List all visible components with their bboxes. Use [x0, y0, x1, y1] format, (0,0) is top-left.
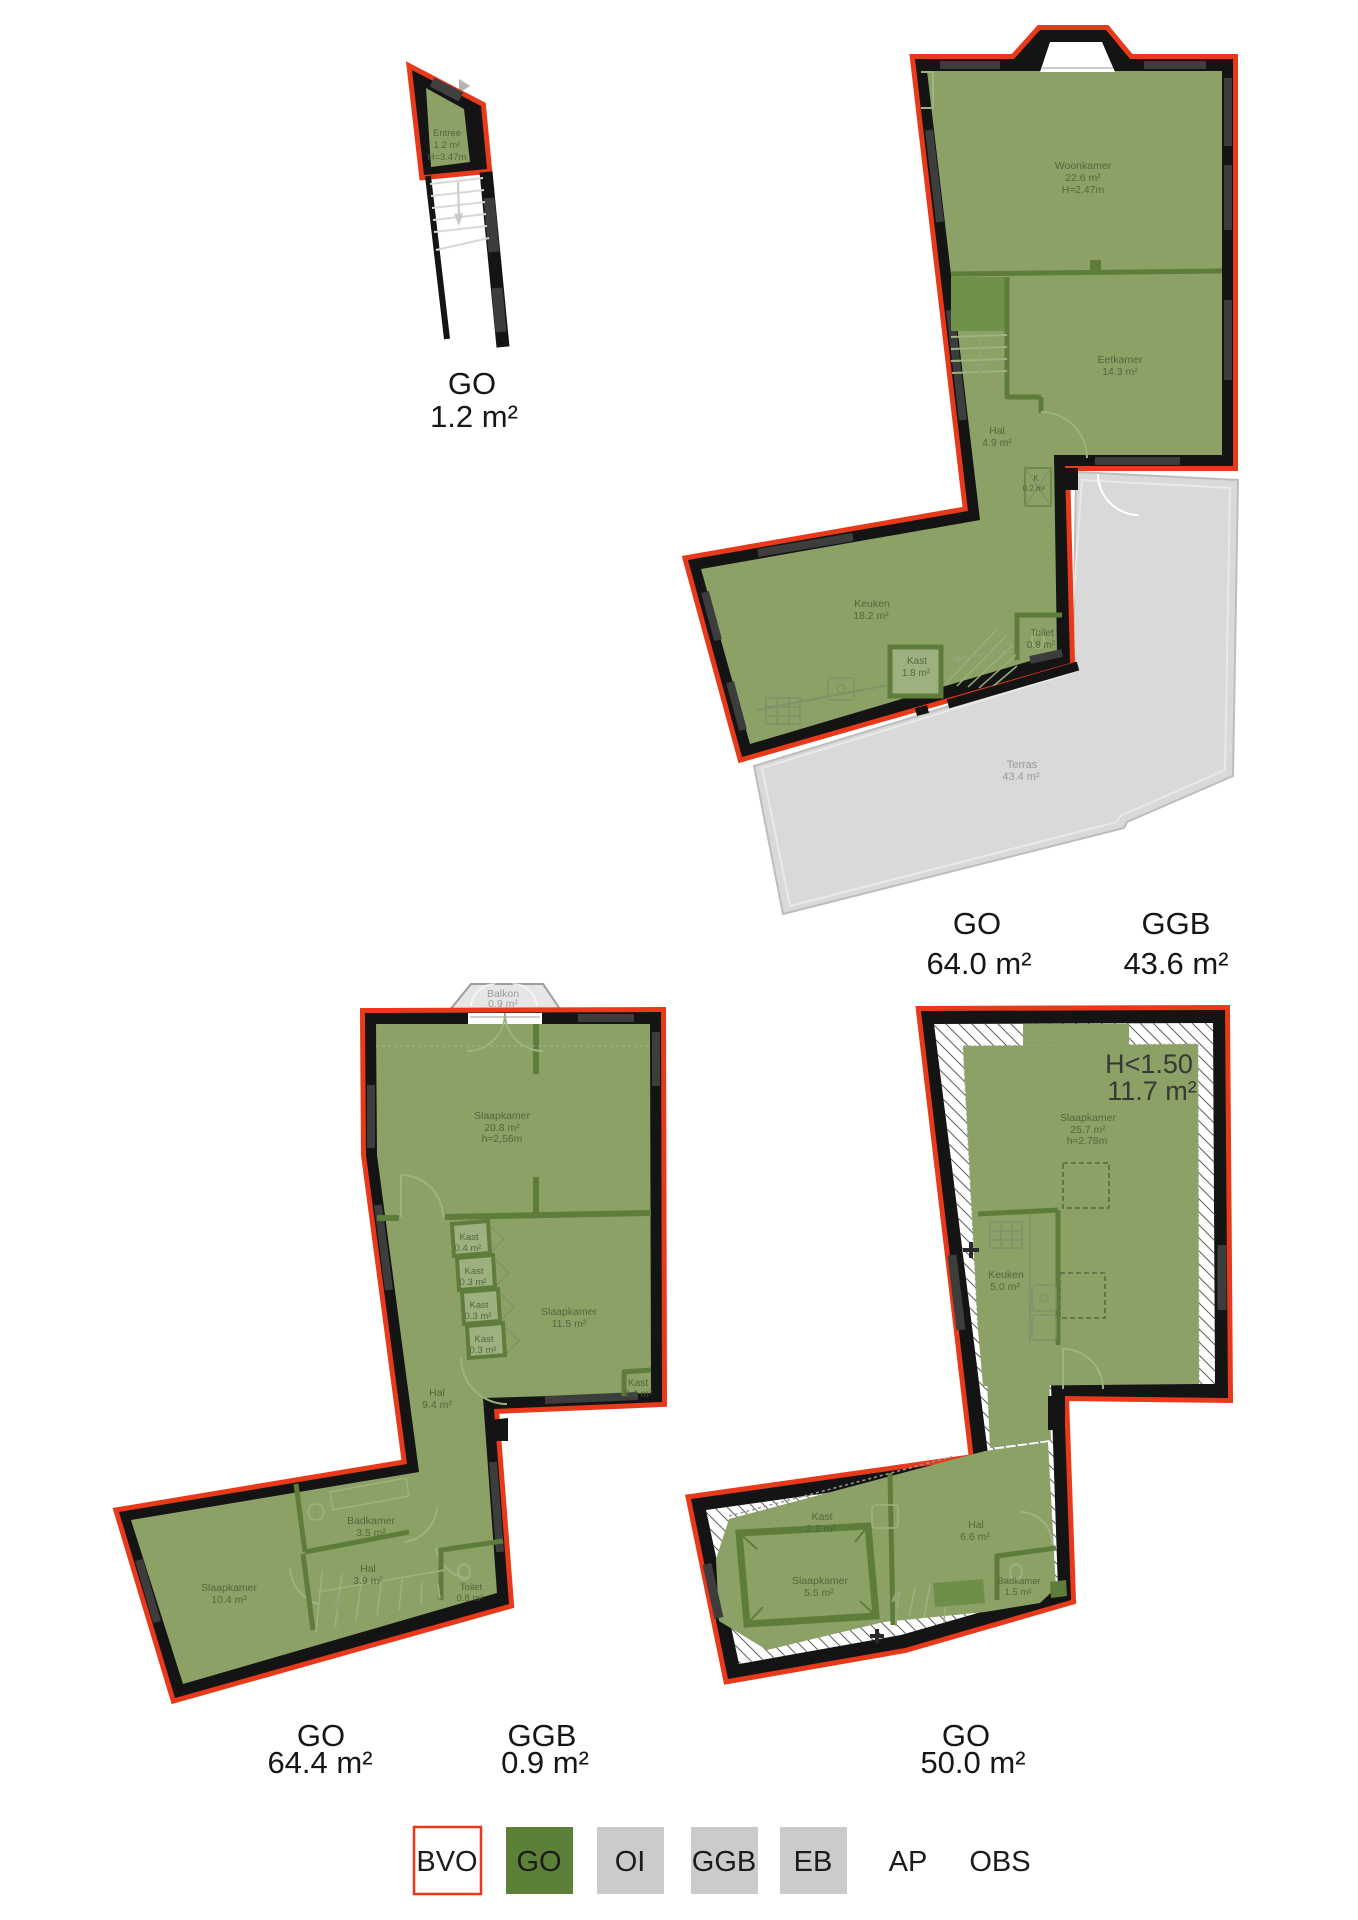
- svg-text:0.8 m²: 0.8 m²: [1027, 640, 1056, 651]
- svg-text:h≈2,56m: h≈2,56m: [482, 1133, 523, 1145]
- svg-text:0.3 m²: 0.3 m²: [460, 1277, 487, 1288]
- svg-text:Entree: Entree: [433, 128, 461, 139]
- svg-text:3.9 m²: 3.9 m²: [353, 1575, 383, 1587]
- svg-text:6.6 m²: 6.6 m²: [960, 1531, 990, 1543]
- svg-text:Kast: Kast: [474, 1334, 493, 1345]
- svg-text:h≈2.78m: h≈2.78m: [1067, 1135, 1108, 1147]
- svg-text:Slaapkamer: Slaapkamer: [201, 1582, 258, 1594]
- svg-text:K: K: [1033, 474, 1039, 483]
- svg-text:H=3.47m: H=3.47m: [428, 152, 467, 163]
- svg-text:1.8 m²: 1.8 m²: [902, 668, 931, 679]
- svg-text:Toilet: Toilet: [1030, 628, 1054, 639]
- svg-text:Slaapkamer: Slaapkamer: [1060, 1112, 1117, 1124]
- svg-text:Kast: Kast: [464, 1266, 483, 1277]
- svg-text:64.4 m²: 64.4 m²: [267, 1745, 372, 1780]
- svg-text:43.4 m²: 43.4 m²: [1002, 771, 1040, 783]
- svg-text:0.4 m²: 0.4 m²: [624, 1389, 653, 1400]
- svg-text:Hal: Hal: [989, 425, 1005, 437]
- svg-text:GGB: GGB: [692, 1846, 756, 1878]
- svg-text:5.5 m²: 5.5 m²: [804, 1587, 834, 1599]
- svg-text:2.2 m²: 2.2 m²: [806, 1523, 836, 1535]
- svg-text:Hal: Hal: [360, 1563, 376, 1575]
- svg-text:Hal: Hal: [429, 1387, 445, 1399]
- svg-text:Badkamer: Badkamer: [997, 1576, 1040, 1587]
- svg-text:11.5 m²: 11.5 m²: [552, 1318, 587, 1330]
- svg-text:0.9 m²: 0.9 m²: [501, 1745, 589, 1780]
- svg-text:EB: EB: [794, 1846, 833, 1878]
- svg-text:Keuken: Keuken: [988, 1269, 1024, 1281]
- svg-text:0.3 m²: 0.3 m²: [470, 1345, 497, 1356]
- svg-text:18.2 m²: 18.2 m²: [853, 610, 889, 622]
- svg-text:9.4 m²: 9.4 m²: [422, 1399, 452, 1411]
- svg-text:GO: GO: [516, 1846, 561, 1878]
- svg-text:3.5 m²: 3.5 m²: [356, 1527, 386, 1539]
- svg-text:50.0 m²: 50.0 m²: [920, 1745, 1025, 1780]
- svg-text:1.2 m²: 1.2 m²: [434, 140, 461, 151]
- svg-text:1.2 m²: 1.2 m²: [430, 399, 518, 434]
- svg-text:OI: OI: [615, 1846, 646, 1878]
- svg-text:Kast: Kast: [811, 1511, 832, 1523]
- svg-text:22.6 m²: 22.6 m²: [1065, 172, 1101, 184]
- svg-text:43.6 m²: 43.6 m²: [1123, 946, 1228, 981]
- svg-text:14.3 m²: 14.3 m²: [1102, 366, 1138, 378]
- svg-text:64.0 m²: 64.0 m²: [926, 946, 1031, 981]
- svg-text:0.2 m²: 0.2 m²: [1023, 484, 1046, 493]
- svg-text:Woonkamer: Woonkamer: [1055, 160, 1112, 172]
- svg-text:Terras: Terras: [1007, 759, 1038, 771]
- svg-text:GO: GO: [953, 906, 1001, 941]
- svg-text:Keuken: Keuken: [854, 598, 890, 610]
- svg-text:10.4 m²: 10.4 m²: [211, 1594, 247, 1606]
- svg-text:GGB: GGB: [1142, 906, 1211, 941]
- svg-text:0.8 m²: 0.8 m²: [457, 1593, 484, 1604]
- svg-text:Kast: Kast: [459, 1232, 478, 1243]
- svg-text:OBS: OBS: [969, 1846, 1030, 1878]
- svg-text:Kast: Kast: [907, 656, 927, 667]
- svg-text:0.3 m²: 0.3 m²: [465, 1311, 492, 1322]
- svg-text:Kast: Kast: [628, 1378, 648, 1389]
- svg-text:Kast: Kast: [469, 1300, 488, 1311]
- svg-text:Slaapkamer: Slaapkamer: [792, 1575, 849, 1587]
- svg-text:1.5 m²: 1.5 m²: [1005, 1587, 1032, 1598]
- svg-text:H<1.50: H<1.50: [1105, 1049, 1193, 1079]
- svg-text:5.0 m²: 5.0 m²: [990, 1281, 1020, 1293]
- svg-text:GO: GO: [448, 366, 496, 401]
- svg-text:Slaapkamer: Slaapkamer: [541, 1306, 598, 1318]
- svg-text:Slaapkamer: Slaapkamer: [474, 1110, 531, 1122]
- svg-text:Eetkamer: Eetkamer: [1098, 354, 1143, 366]
- svg-text:4.9 m²: 4.9 m²: [982, 437, 1012, 449]
- svg-text:Hal: Hal: [968, 1519, 984, 1531]
- svg-text:AP: AP: [889, 1846, 928, 1878]
- svg-text:Badkamer: Badkamer: [347, 1515, 395, 1527]
- svg-text:11.7 m²: 11.7 m²: [1107, 1076, 1197, 1106]
- svg-text:Toilet: Toilet: [460, 1582, 483, 1593]
- svg-text:H≈2.47m: H≈2.47m: [1062, 184, 1105, 196]
- svg-text:BVO: BVO: [416, 1846, 477, 1878]
- svg-text:0.4 m²: 0.4 m²: [455, 1243, 482, 1254]
